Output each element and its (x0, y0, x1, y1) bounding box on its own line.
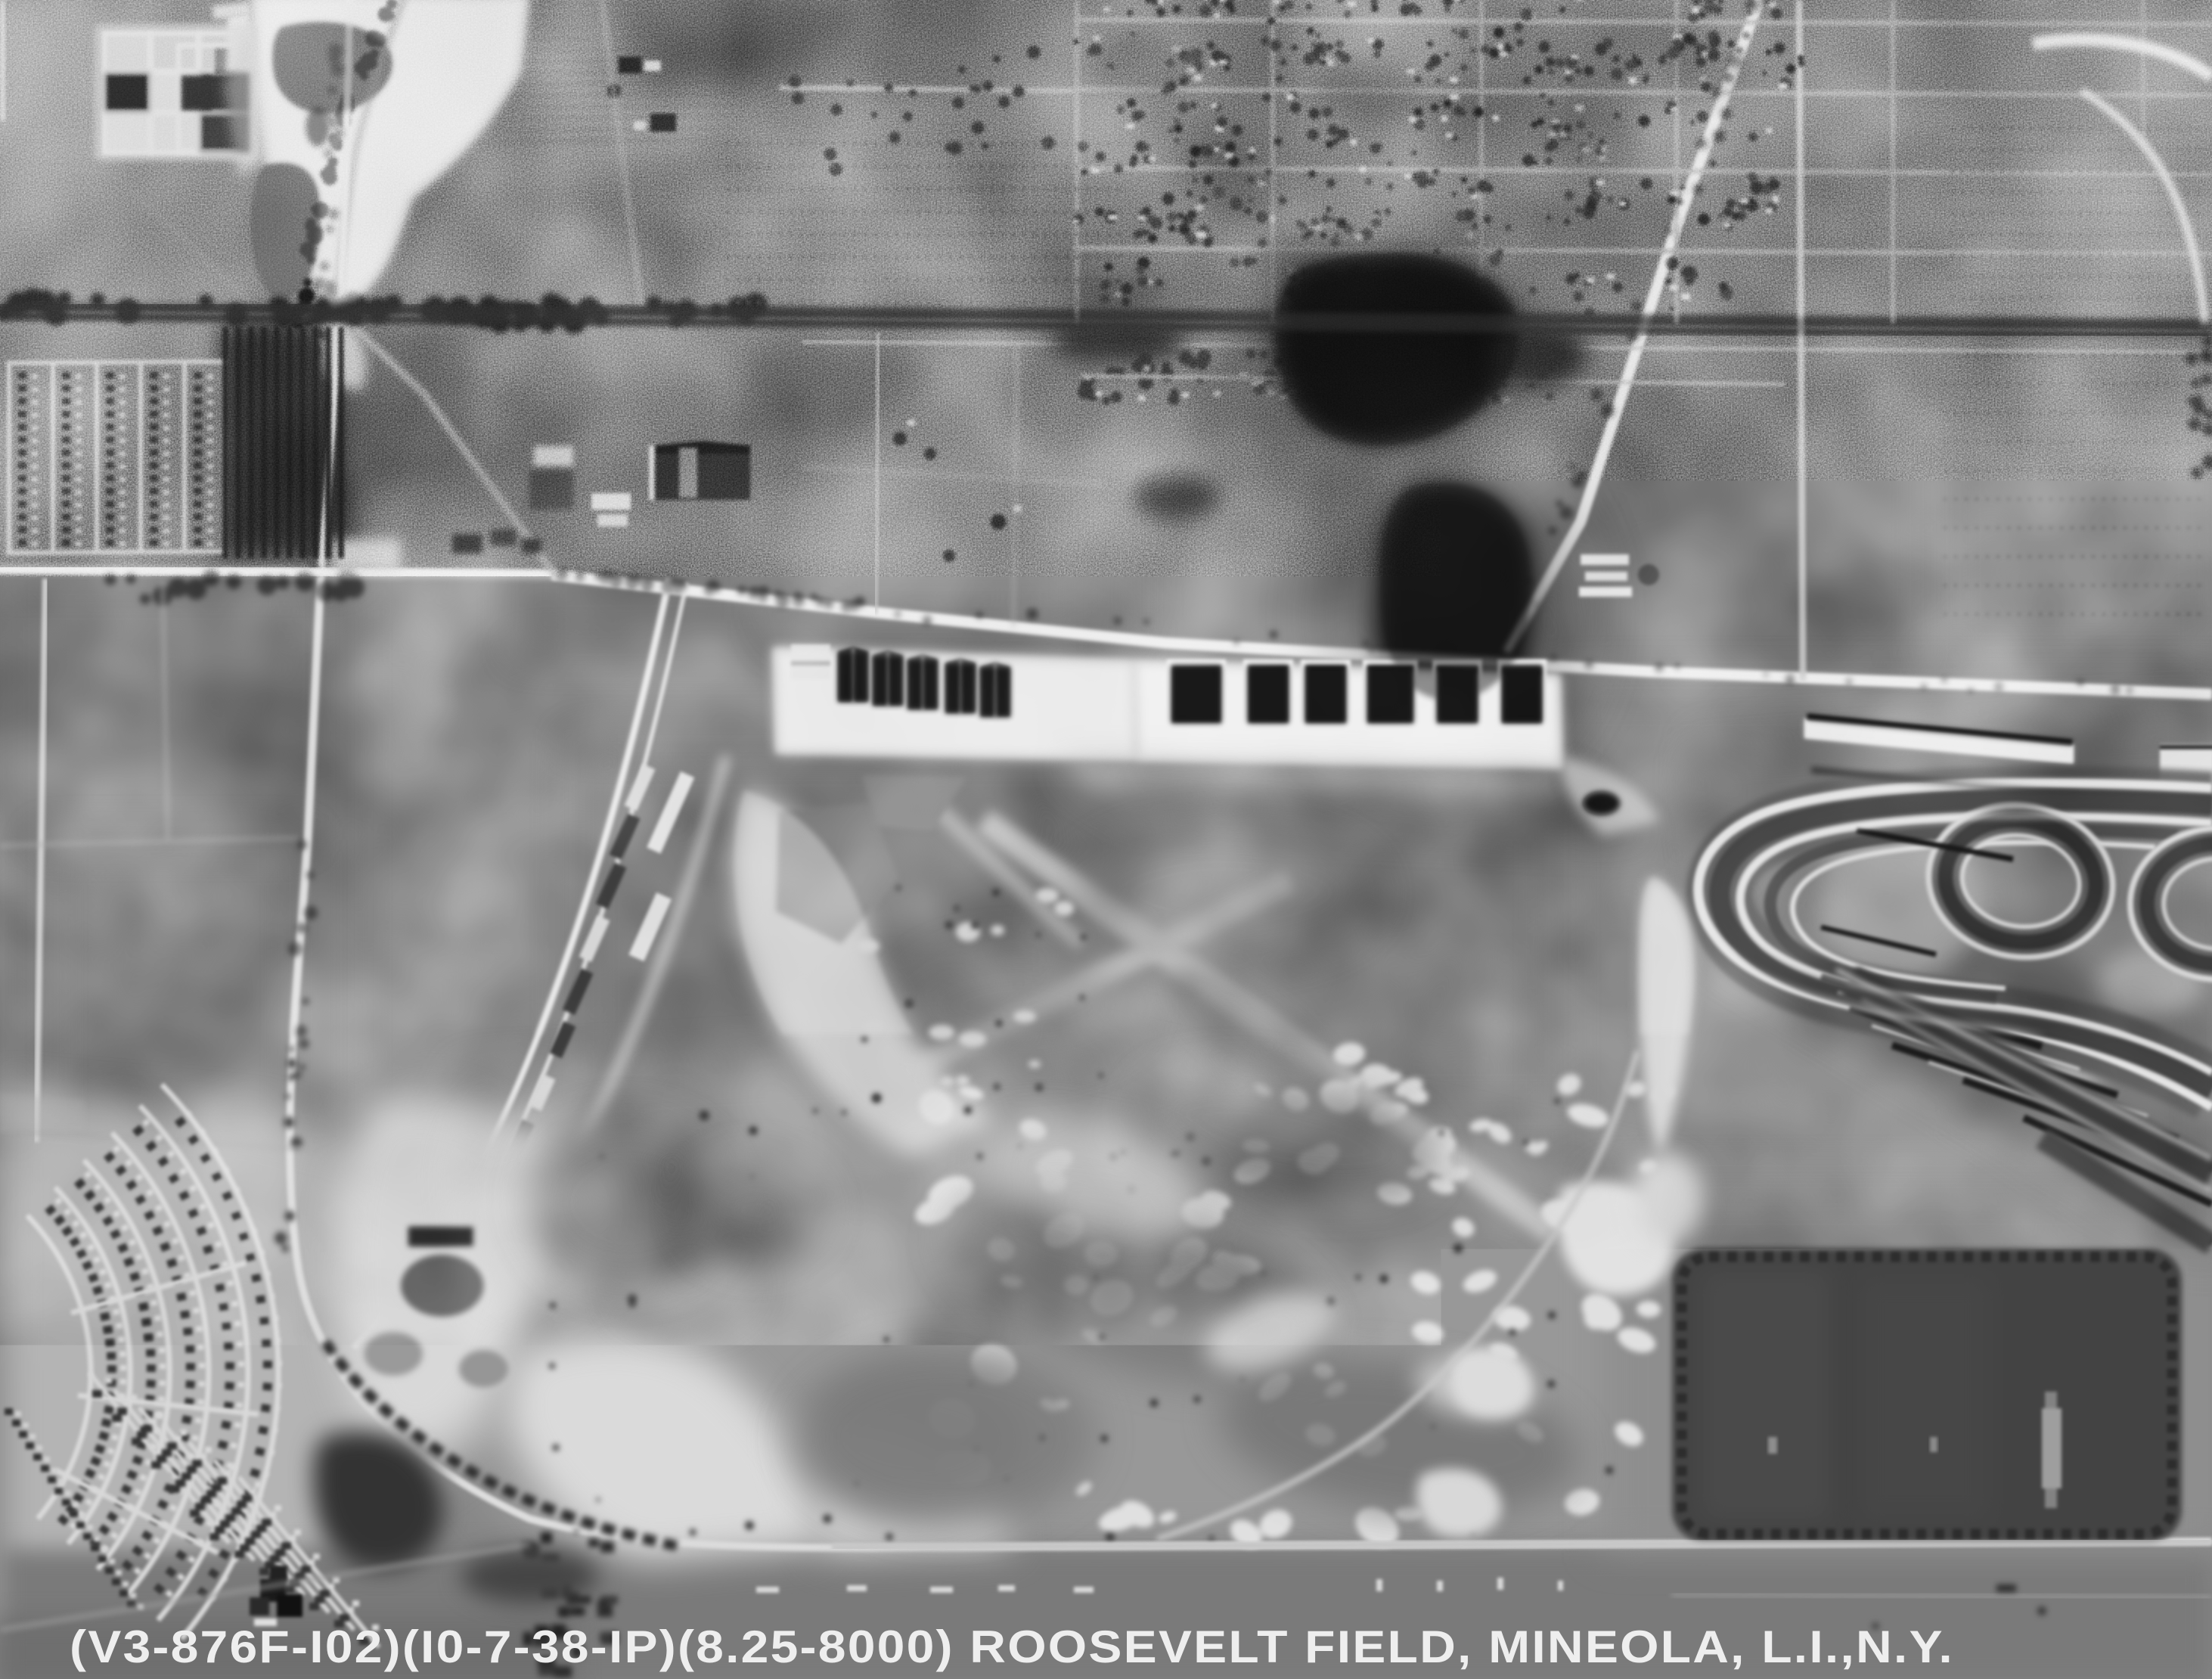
svg-text:(V3-876F-I02)(I0-7-38-IP)(8.25: (V3-876F-I02)(I0-7-38-IP)(8.25-8000) ROO… (70, 1622, 1954, 1672)
